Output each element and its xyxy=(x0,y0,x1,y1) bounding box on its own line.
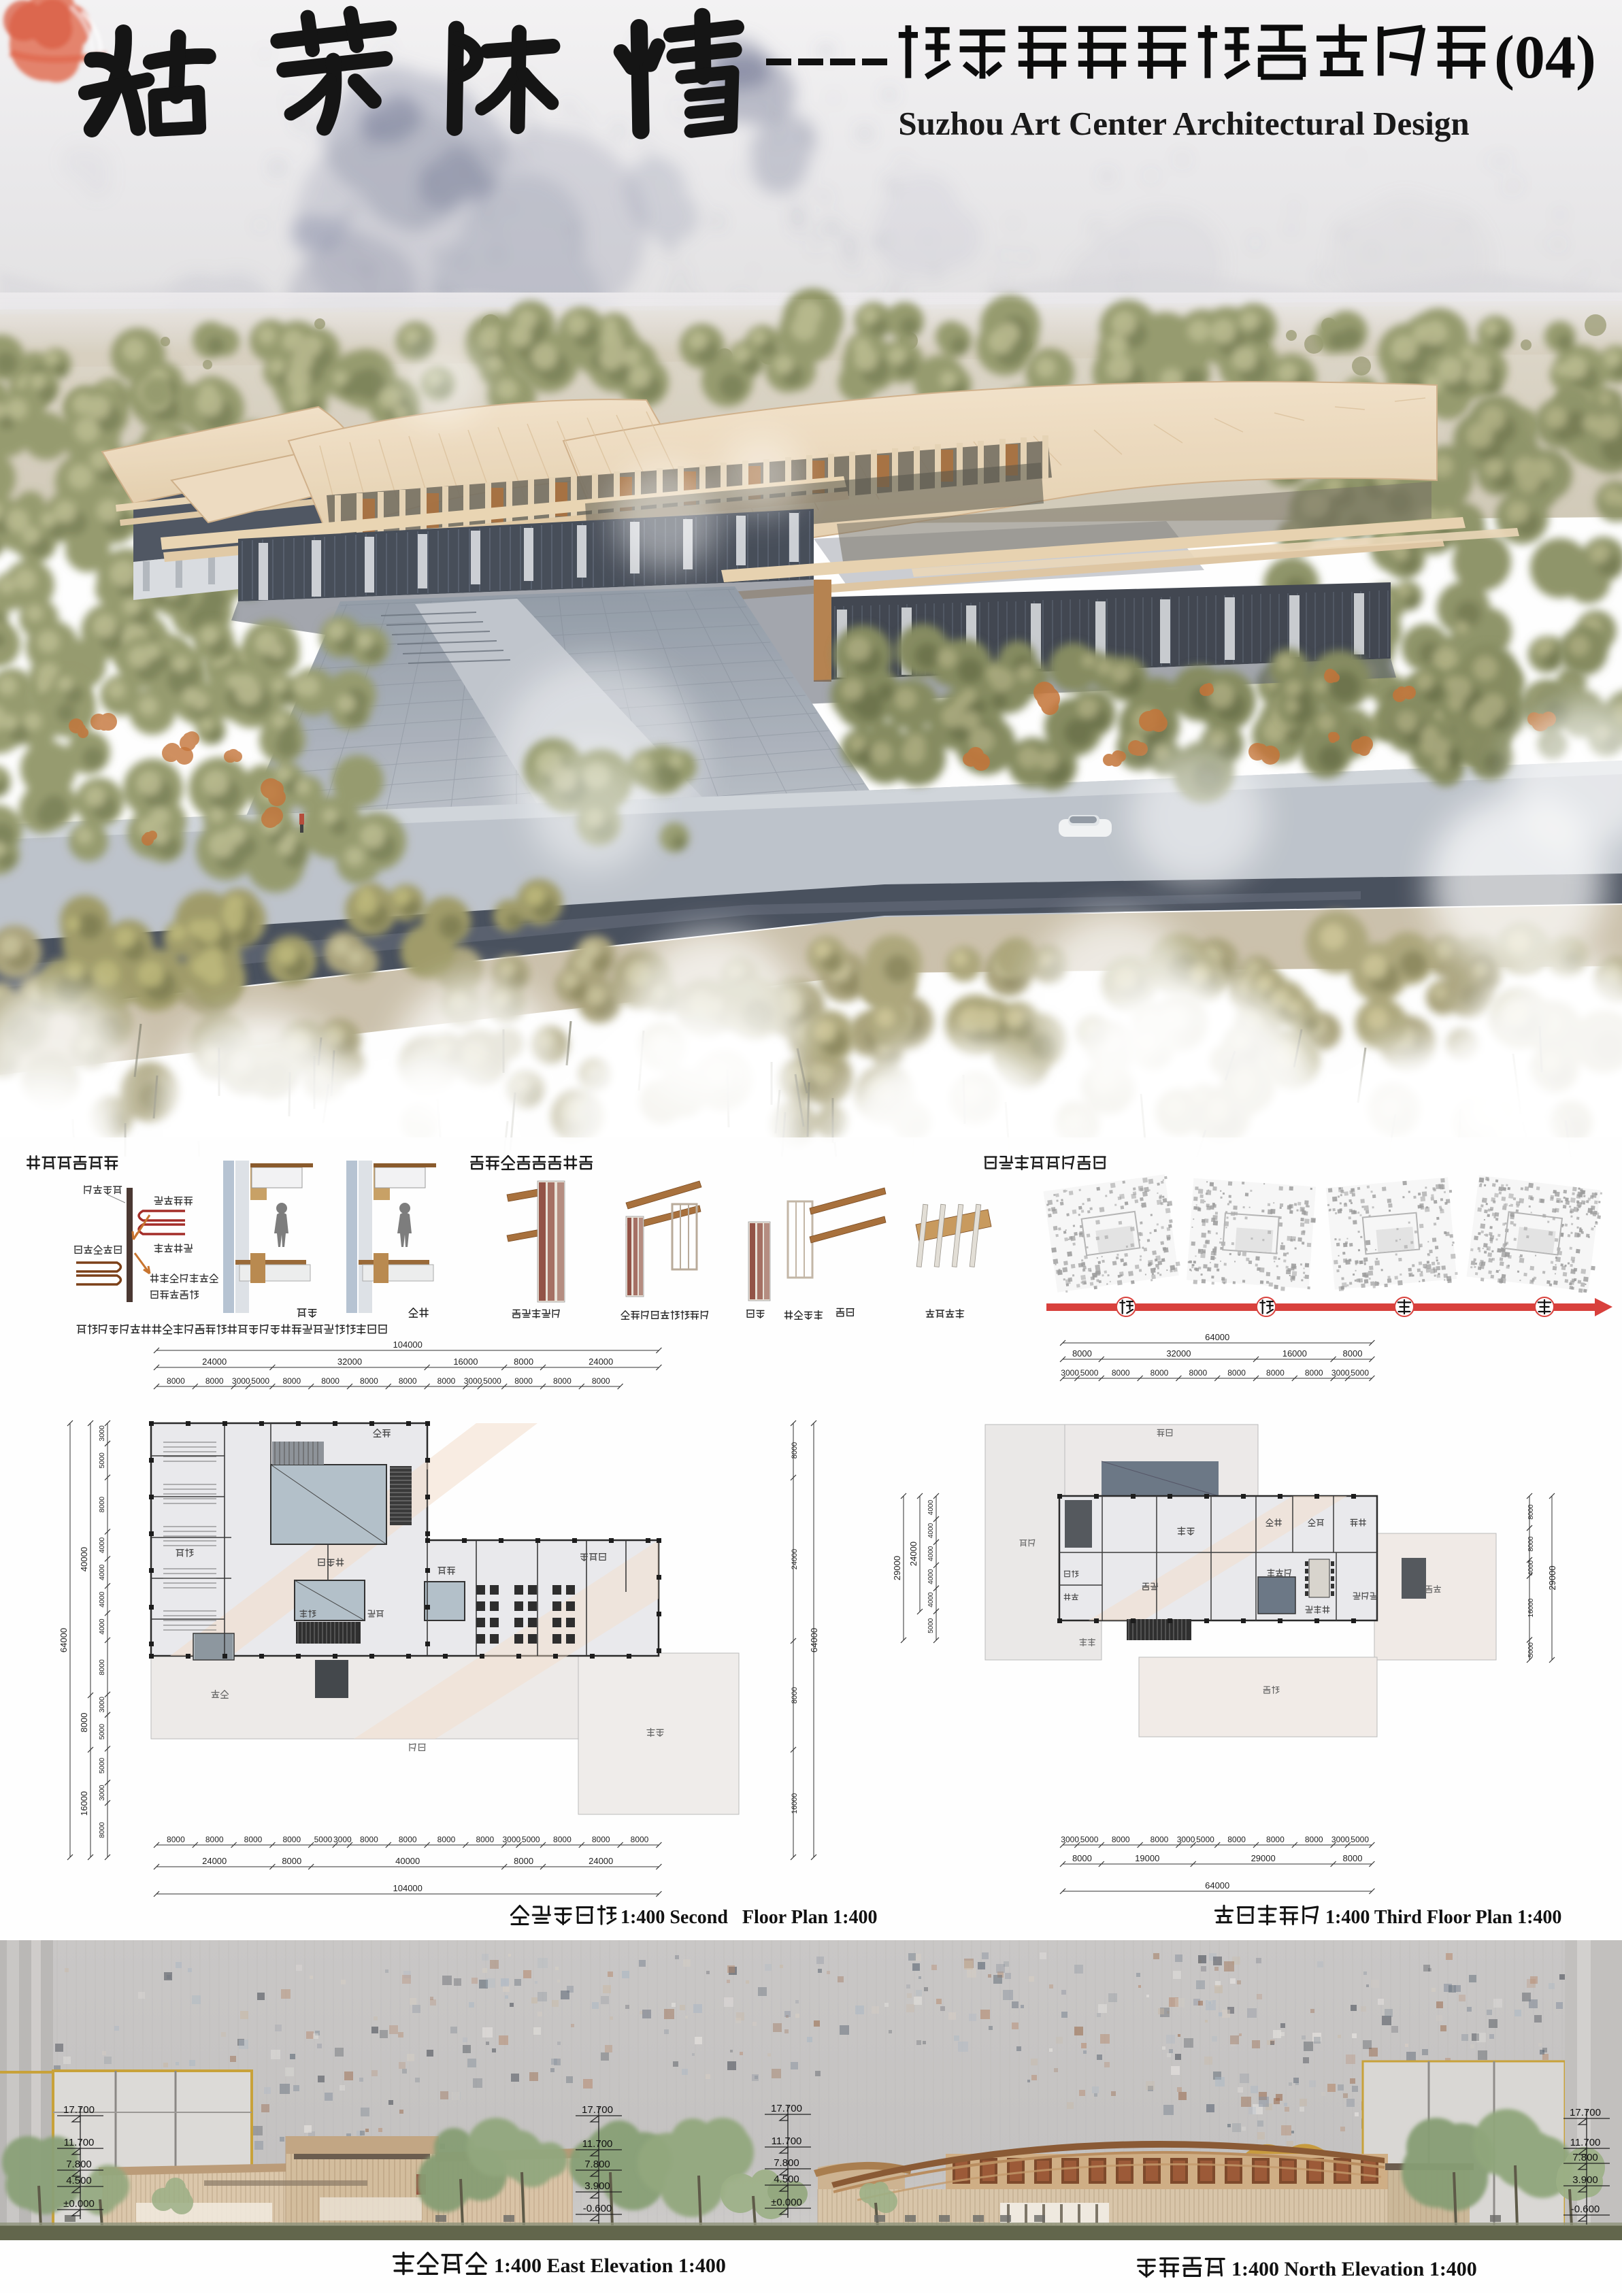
svg-text:11.700: 11.700 xyxy=(1570,2137,1601,2148)
svg-text:8000: 8000 xyxy=(98,1659,106,1676)
svg-text:1:400 East Elevation 1:400: 1:400 East Elevation 1:400 xyxy=(494,2255,726,2277)
svg-text:8000: 8000 xyxy=(244,1835,263,1844)
svg-text:5000: 5000 xyxy=(1196,1835,1214,1844)
svg-text:3000: 3000 xyxy=(333,1835,352,1844)
svg-text:8000: 8000 xyxy=(1151,1835,1169,1844)
svg-text:104000: 104000 xyxy=(393,1883,423,1893)
svg-text:3000: 3000 xyxy=(1177,1835,1195,1844)
svg-text:1:400 Third Floor Plan 1:400: 1:400 Third Floor Plan 1:400 xyxy=(1325,1907,1561,1928)
svg-text:40000: 40000 xyxy=(79,1547,89,1571)
svg-text:1:400 North Elevation 1:400: 1:400 North Elevation 1:400 xyxy=(1231,2258,1477,2280)
svg-text:±0.000: ±0.000 xyxy=(771,2197,802,2208)
svg-text:8000: 8000 xyxy=(1112,1835,1130,1844)
svg-text:8000: 8000 xyxy=(1527,1536,1535,1552)
svg-text:8000: 8000 xyxy=(98,1497,106,1513)
svg-text:17.700: 17.700 xyxy=(1570,2107,1601,2118)
svg-text:8000: 8000 xyxy=(167,1376,185,1386)
svg-text:8000: 8000 xyxy=(514,1856,533,1866)
svg-text:7.800: 7.800 xyxy=(66,2159,92,2170)
svg-text:24000: 24000 xyxy=(202,1357,227,1367)
svg-text:3000: 3000 xyxy=(1061,1368,1079,1378)
svg-text:8000: 8000 xyxy=(1227,1368,1246,1378)
svg-text:8000: 8000 xyxy=(360,1376,378,1386)
svg-text:17.700: 17.700 xyxy=(63,2104,95,2116)
svg-text:8000: 8000 xyxy=(399,1835,417,1844)
svg-text:8000: 8000 xyxy=(437,1376,456,1386)
svg-text:17.700: 17.700 xyxy=(582,2104,613,2116)
svg-text:4000: 4000 xyxy=(927,1523,935,1538)
svg-text:8000: 8000 xyxy=(282,1856,301,1866)
svg-text:24000: 24000 xyxy=(202,1856,227,1866)
svg-text:3000: 3000 xyxy=(98,1697,106,1713)
svg-text:(04): (04) xyxy=(1494,24,1596,91)
svg-text:5000: 5000 xyxy=(98,1452,106,1469)
svg-text:8000: 8000 xyxy=(1189,1368,1207,1378)
svg-text:8000: 8000 xyxy=(1072,1853,1092,1863)
svg-text:4000: 4000 xyxy=(1527,1560,1535,1576)
svg-text:4.500: 4.500 xyxy=(774,2174,799,2185)
svg-text:8000: 8000 xyxy=(1266,1368,1285,1378)
svg-text:4000: 4000 xyxy=(927,1499,935,1515)
svg-text:16000: 16000 xyxy=(453,1357,478,1367)
svg-text:40000: 40000 xyxy=(395,1856,420,1866)
svg-text:19000: 19000 xyxy=(1135,1853,1159,1863)
svg-text:8000: 8000 xyxy=(1266,1835,1285,1844)
svg-text:32000: 32000 xyxy=(1166,1348,1191,1359)
svg-text:5000: 5000 xyxy=(927,1618,935,1633)
svg-text:8000: 8000 xyxy=(399,1376,417,1386)
svg-text:5000: 5000 xyxy=(98,1758,106,1774)
svg-text:3000: 3000 xyxy=(232,1376,250,1386)
svg-text:4000: 4000 xyxy=(98,1564,106,1580)
svg-text:5000: 5000 xyxy=(483,1376,501,1386)
svg-text:8000: 8000 xyxy=(98,1822,106,1838)
svg-text:5000: 5000 xyxy=(98,1724,106,1740)
svg-text:29000: 29000 xyxy=(892,1556,902,1580)
svg-text:3.900: 3.900 xyxy=(1572,2174,1598,2186)
svg-text:3000: 3000 xyxy=(1331,1835,1350,1844)
svg-text:3000: 3000 xyxy=(502,1835,520,1844)
svg-text:32000: 32000 xyxy=(337,1357,362,1367)
svg-text:5000: 5000 xyxy=(1351,1835,1369,1844)
svg-text:8000: 8000 xyxy=(592,1376,610,1386)
svg-text:24000: 24000 xyxy=(589,1856,613,1866)
svg-text:4.500: 4.500 xyxy=(66,2175,92,2186)
svg-text:3000: 3000 xyxy=(98,1784,106,1801)
svg-text:8000: 8000 xyxy=(1343,1853,1363,1863)
svg-text:3000: 3000 xyxy=(1061,1835,1079,1844)
svg-text:8000: 8000 xyxy=(1527,1504,1535,1520)
svg-text:16000: 16000 xyxy=(791,1793,799,1814)
svg-text:5000: 5000 xyxy=(522,1835,540,1844)
svg-text:8000: 8000 xyxy=(282,1376,301,1386)
svg-text:8000: 8000 xyxy=(514,1376,533,1386)
svg-text:64000: 64000 xyxy=(809,1628,819,1652)
svg-text:8000: 8000 xyxy=(791,1442,799,1459)
svg-text:4000: 4000 xyxy=(98,1591,106,1608)
svg-text:64000: 64000 xyxy=(1205,1880,1229,1891)
svg-text:8000: 8000 xyxy=(1151,1368,1169,1378)
svg-text:-0.600: -0.600 xyxy=(583,2203,612,2214)
svg-text:8000: 8000 xyxy=(592,1835,610,1844)
svg-text:7.800: 7.800 xyxy=(774,2157,799,2169)
svg-text:24000: 24000 xyxy=(908,1542,918,1566)
svg-text:8000: 8000 xyxy=(631,1835,649,1844)
svg-text:5000: 5000 xyxy=(314,1835,333,1844)
svg-text:8000: 8000 xyxy=(282,1835,301,1844)
svg-text:8000: 8000 xyxy=(321,1376,340,1386)
svg-text:3000: 3000 xyxy=(464,1376,482,1386)
svg-text:4000: 4000 xyxy=(927,1546,935,1561)
svg-text:64000: 64000 xyxy=(1205,1332,1229,1342)
svg-text:29000: 29000 xyxy=(1547,1565,1557,1590)
svg-text:8000: 8000 xyxy=(1227,1835,1246,1844)
svg-text:8000: 8000 xyxy=(1305,1835,1323,1844)
svg-text:5000: 5000 xyxy=(1351,1368,1369,1378)
svg-text:4000: 4000 xyxy=(98,1537,106,1554)
svg-text:5000: 5000 xyxy=(1080,1835,1099,1844)
svg-text:24000: 24000 xyxy=(589,1357,613,1367)
svg-text:8000: 8000 xyxy=(791,1687,799,1703)
svg-text:3000: 3000 xyxy=(1331,1368,1350,1378)
svg-text:-0.600: -0.600 xyxy=(1571,2203,1600,2215)
svg-text:8000: 8000 xyxy=(1305,1368,1323,1378)
svg-text:8000: 8000 xyxy=(205,1376,224,1386)
svg-text:±0.000: ±0.000 xyxy=(63,2198,95,2210)
svg-text:29000: 29000 xyxy=(1251,1853,1276,1863)
svg-text:7.800: 7.800 xyxy=(584,2159,610,2170)
svg-text:Suzhou Art Center Architectura: Suzhou Art Center Architectural Design xyxy=(898,105,1469,142)
svg-text:11.700: 11.700 xyxy=(582,2138,613,2150)
svg-text:3000: 3000 xyxy=(98,1425,106,1442)
svg-text:8000: 8000 xyxy=(476,1835,494,1844)
svg-text:11.700: 11.700 xyxy=(64,2137,95,2148)
svg-text:4000: 4000 xyxy=(98,1618,106,1635)
svg-text:8000: 8000 xyxy=(1343,1348,1363,1359)
svg-text:5000: 5000 xyxy=(251,1376,269,1386)
svg-text:17.700: 17.700 xyxy=(771,2103,802,2114)
svg-text:16000: 16000 xyxy=(1527,1598,1535,1617)
svg-text:8000: 8000 xyxy=(437,1835,456,1844)
svg-text:8000: 8000 xyxy=(553,1835,572,1844)
svg-text:8000: 8000 xyxy=(553,1376,572,1386)
svg-text:11.700: 11.700 xyxy=(772,2135,802,2147)
svg-text:8000: 8000 xyxy=(514,1357,533,1367)
svg-text:16000: 16000 xyxy=(1282,1348,1307,1359)
svg-text:64000: 64000 xyxy=(59,1628,69,1652)
svg-text:8000: 8000 xyxy=(1112,1368,1130,1378)
svg-text:104000: 104000 xyxy=(393,1340,423,1350)
svg-text:8000: 8000 xyxy=(205,1835,224,1844)
svg-text:1:400 Second Floor Plan 1:40: 1:400 Second Floor Plan 1:400 xyxy=(620,1907,877,1928)
svg-text:4000: 4000 xyxy=(927,1569,935,1584)
svg-text:8000: 8000 xyxy=(360,1835,378,1844)
svg-text:3.900: 3.900 xyxy=(584,2180,610,2192)
svg-text:5000: 5000 xyxy=(1527,1642,1535,1658)
svg-text:24000: 24000 xyxy=(791,1549,799,1570)
svg-text:8000: 8000 xyxy=(167,1835,185,1844)
svg-text:5000: 5000 xyxy=(1080,1368,1099,1378)
svg-text:8000: 8000 xyxy=(79,1713,89,1733)
svg-text:4000: 4000 xyxy=(927,1592,935,1608)
svg-text:16000: 16000 xyxy=(79,1791,89,1816)
svg-text:7.800: 7.800 xyxy=(1572,2152,1598,2163)
svg-text:8000: 8000 xyxy=(1072,1348,1092,1359)
